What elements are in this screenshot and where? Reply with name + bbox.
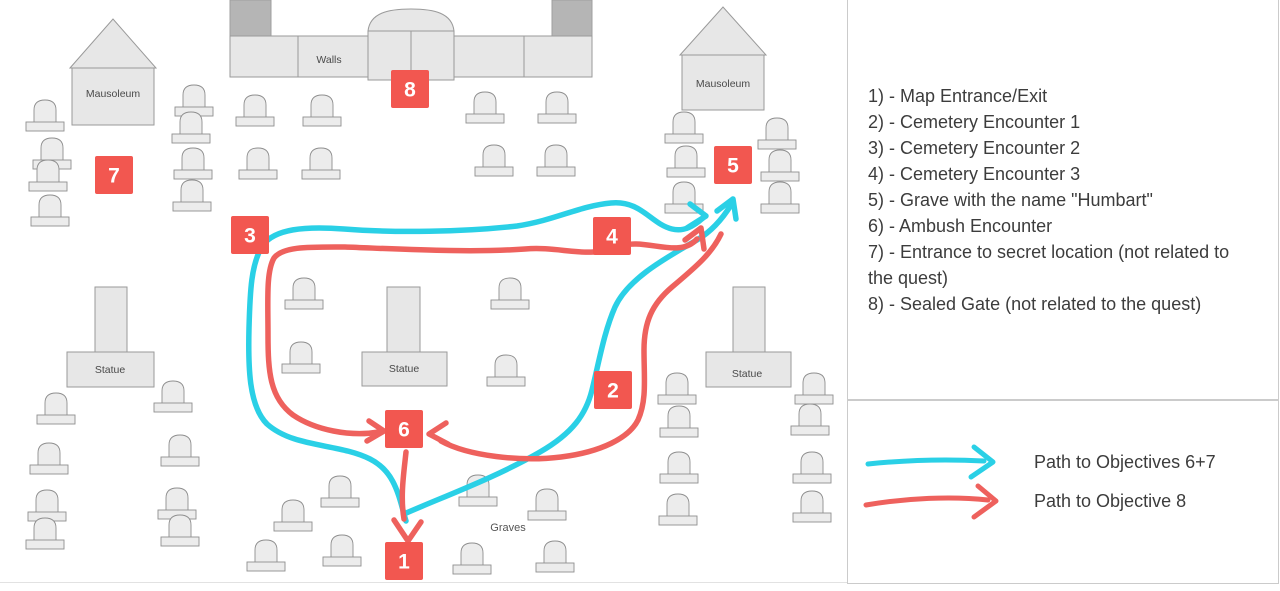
gravestone-base [475, 167, 513, 176]
gravestone-dome [536, 489, 558, 512]
gravestone-dome [675, 146, 697, 169]
gravestone-dome [545, 145, 567, 168]
marker-number: 3 [244, 225, 256, 248]
gravestone [791, 404, 829, 435]
gravestone [158, 488, 196, 519]
gravestone [491, 278, 529, 309]
gravestone [321, 476, 359, 507]
gravestone-base [667, 168, 705, 177]
statue-right: Statue [706, 287, 791, 387]
mausoleum-roof [680, 7, 766, 55]
gravestone-dome [180, 112, 202, 135]
red-arrow-line [866, 498, 988, 505]
gravestone [239, 148, 277, 179]
gravestone-base [491, 300, 529, 309]
gravestone [665, 112, 703, 143]
gravestone-base [302, 170, 340, 179]
red-arrowhead-into-6-from-right [429, 423, 448, 444]
gravestone-dome [801, 452, 823, 475]
red-route-inner-loop [268, 239, 697, 434]
legend-row-red: Path to Objective 8 [862, 482, 1186, 520]
gravestone-dome [546, 92, 568, 115]
wall-pillar-left [230, 0, 271, 36]
gravestone [795, 373, 833, 404]
gravestone [761, 182, 799, 213]
gravestone-base [37, 415, 75, 424]
statue-column [95, 287, 127, 353]
gravestone-base [795, 395, 833, 404]
gravestone-dome [668, 406, 690, 429]
statue-column [733, 287, 765, 353]
gravestone-base [323, 557, 361, 566]
gravestone [175, 85, 213, 116]
gravestone [28, 490, 66, 521]
red-path-arrow-icon [862, 482, 1012, 520]
objective-item-5: 5) - Grave with the name "Humbart" [868, 187, 1253, 213]
gravestone [667, 146, 705, 177]
gravestone-base [466, 114, 504, 123]
gravestone-base [26, 540, 64, 549]
marker-number: 8 [404, 79, 416, 102]
gravestone-base [536, 563, 574, 572]
map-marker-3: 3 [231, 216, 269, 254]
marker-number: 1 [398, 551, 410, 574]
gravestone-dome [39, 195, 61, 218]
gravestone-base [285, 300, 323, 309]
gravestone [536, 541, 574, 572]
gravestone-dome [331, 535, 353, 558]
gravestone-base [321, 498, 359, 507]
gravestone [658, 373, 696, 404]
gravestone-dome [37, 160, 59, 183]
gravestone-dome [162, 381, 184, 404]
gravestone [793, 491, 831, 522]
gravestone [173, 180, 211, 211]
red-route-6-to-1 [402, 452, 406, 519]
gravestone [282, 342, 320, 373]
gravestone-dome [673, 182, 695, 205]
marker-number: 7 [108, 165, 120, 188]
objective-item-7: 7) - Entrance to secret location (not re… [868, 239, 1253, 291]
gravestone-base [26, 122, 64, 131]
gravestone [174, 148, 212, 179]
gravestone [475, 145, 513, 176]
gravestone-base [29, 182, 67, 191]
gravestone [758, 118, 796, 149]
gravestone-dome [329, 476, 351, 499]
gravestone-dome [181, 180, 203, 203]
gravestone-dome [667, 494, 689, 517]
gravestone [302, 148, 340, 179]
gravestone [659, 494, 697, 525]
objectives-list: 1) - Map Entrance/Exit 2) - Cemetery Enc… [848, 0, 1269, 317]
marker-number: 2 [607, 380, 619, 403]
statue-label: Statue [732, 368, 763, 380]
gravestone-dome [769, 182, 791, 205]
gravestone [487, 355, 525, 386]
statue-label: Statue [95, 364, 126, 376]
gravestone [528, 489, 566, 520]
gravestone [303, 95, 341, 126]
map-marker-2: 2 [594, 371, 632, 409]
gravestone-base [660, 428, 698, 437]
gravestone [453, 543, 491, 574]
gravestone [285, 278, 323, 309]
objective-item-2: 2) - Cemetery Encounter 1 [868, 109, 1253, 135]
gravestone-base [161, 457, 199, 466]
gravestone-base [239, 170, 277, 179]
gravestone-base [660, 474, 698, 483]
objective-item-6: 6) - Ambush Encounter [868, 213, 1253, 239]
gravestone-base [30, 465, 68, 474]
gravestone [538, 92, 576, 123]
gravestone [30, 443, 68, 474]
gravestone-dome [769, 150, 791, 173]
gravestone-dome [169, 515, 191, 538]
marker-number: 4 [606, 226, 618, 249]
map-marker-4: 4 [593, 217, 631, 255]
gravestone-dome [183, 85, 205, 108]
gravestone-base [173, 202, 211, 211]
gravestone-dome [673, 112, 695, 135]
gravestone [761, 150, 799, 181]
gravestone-dome [766, 118, 788, 141]
wall-pillar-right [552, 0, 592, 36]
gravestone-base [459, 497, 497, 506]
gravestone-base [453, 565, 491, 574]
gravestone-base [538, 114, 576, 123]
gravestone-base [174, 170, 212, 179]
gravestone-dome [666, 373, 688, 396]
walls-label: Walls [316, 54, 341, 66]
cyan-path-arrow-icon [862, 443, 1012, 481]
legend-label-red: Path to Objective 8 [1034, 491, 1186, 512]
gravestone-dome [461, 543, 483, 566]
gravestone-base [172, 134, 210, 143]
gravestone-dome [495, 355, 517, 378]
gravestone [26, 518, 64, 549]
gravestone [466, 92, 504, 123]
path-legend-panel: Path to Objectives 6+7 Path to Objective… [847, 400, 1279, 584]
gravestone [172, 112, 210, 143]
objective-item-1: 1) - Map Entrance/Exit [868, 83, 1253, 109]
gravestone-base [236, 117, 274, 126]
gravestone [161, 435, 199, 466]
gravestone-dome [166, 488, 188, 511]
gravestone-base [793, 513, 831, 522]
gravestone-base [791, 426, 829, 435]
gravestone-dome [244, 95, 266, 118]
gravestone-dome [311, 95, 333, 118]
gravestone-dome [483, 145, 505, 168]
gravestone-base [758, 140, 796, 149]
objective-item-8: 8) - Sealed Gate (not related to the que… [868, 291, 1253, 317]
gravestone [236, 95, 274, 126]
gravestone-dome [544, 541, 566, 564]
legend-label-cyan: Path to Objectives 6+7 [1034, 452, 1216, 473]
gravestone [161, 515, 199, 546]
gravestone [274, 500, 312, 531]
gravestone-base [665, 134, 703, 143]
gravestone-dome [255, 540, 277, 563]
mausoleum-label: Mausoleum [696, 78, 751, 90]
gravestone-dome [803, 373, 825, 396]
gravestone-base [274, 522, 312, 531]
mausoleum-roof [70, 19, 156, 68]
objective-item-3: 3) - Cemetery Encounter 2 [868, 135, 1253, 161]
gravestone-dome [34, 100, 56, 123]
map-marker-7: 7 [95, 156, 133, 194]
gravestone [660, 406, 698, 437]
legend-row-cyan: Path to Objectives 6+7 [862, 443, 1216, 481]
map-marker-5: 5 [714, 146, 752, 184]
mausoleum-right: Mausoleum [680, 7, 766, 110]
gravestone-base [282, 364, 320, 373]
gravestone-dome [474, 92, 496, 115]
marker-number: 6 [398, 419, 410, 442]
gravestone-base [154, 403, 192, 412]
routes-layer [249, 199, 736, 541]
statue-center: Statue [362, 287, 447, 386]
graves-label: Graves [490, 522, 526, 534]
gravestone-base [487, 377, 525, 386]
gravestone [37, 393, 75, 424]
gravestone [537, 145, 575, 176]
cyan-arrow-line [868, 460, 984, 464]
gravestone-base [537, 167, 575, 176]
map-marker-8: 8 [391, 70, 429, 108]
gravestone-dome [310, 148, 332, 171]
mausoleum-left: Mausoleum [70, 19, 156, 125]
gravestone-dome [499, 278, 521, 301]
map-bottom-edge [0, 582, 847, 583]
gravestone [31, 195, 69, 226]
map-marker-1: 1 [385, 542, 423, 580]
gravestone-base [793, 474, 831, 483]
gravestone-base [161, 537, 199, 546]
gravestone-base [658, 395, 696, 404]
cemetery-map: Walls Mausoleum Mausoleum Statue Statue [0, 0, 845, 591]
quest-map-screenshot: Walls Mausoleum Mausoleum Statue Statue [0, 0, 1280, 591]
marker-number: 5 [727, 155, 739, 178]
gravestone-dome [41, 138, 63, 161]
gravestone-base [761, 172, 799, 181]
gravestone-dome [799, 404, 821, 427]
gravestone-dome [282, 500, 304, 523]
gravestone [247, 540, 285, 571]
gravestone-base [31, 217, 69, 226]
gravestone-base [528, 511, 566, 520]
gravestone-dome [169, 435, 191, 458]
objective-item-4: 4) - Cemetery Encounter 3 [868, 161, 1253, 187]
gravestone-dome [36, 490, 58, 513]
gravestone-dome [182, 148, 204, 171]
map-marker-6: 6 [385, 410, 423, 448]
gravestone-dome [293, 278, 315, 301]
statue-left: Statue [67, 287, 154, 387]
gravestone [323, 535, 361, 566]
gravestone-dome [34, 518, 56, 541]
statue-label: Statue [389, 363, 420, 375]
gravestone-dome [290, 342, 312, 365]
gravestone-dome [38, 443, 60, 466]
walls-structure: Walls [230, 0, 592, 80]
mausoleum-label: Mausoleum [86, 88, 141, 100]
gravestone-dome [45, 393, 67, 416]
gravestone-dome [801, 491, 823, 514]
gravestone-base [659, 516, 697, 525]
gravestone [154, 381, 192, 412]
gravestone-base [761, 204, 799, 213]
objectives-panel: 1) - Map Entrance/Exit 2) - Cemetery Enc… [847, 0, 1279, 400]
gravestone [660, 452, 698, 483]
gravestone-base [247, 562, 285, 571]
gate-arch [368, 9, 454, 31]
gravestone-base [303, 117, 341, 126]
gravestone-dome [668, 452, 690, 475]
gravestone [26, 100, 64, 131]
statue-column [387, 287, 420, 353]
gravestone-dome [247, 148, 269, 171]
gravestone [793, 452, 831, 483]
